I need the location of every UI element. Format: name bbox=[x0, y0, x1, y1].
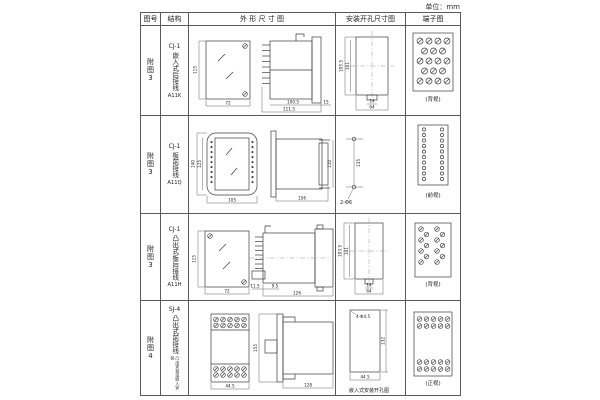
col-header-install: 安装开孔尺寸图 bbox=[336, 13, 406, 26]
dim-front-height: 115 bbox=[192, 65, 197, 73]
dim-side-height: 155 bbox=[253, 343, 258, 351]
terminal-diagram-cell-row2: (前视) bbox=[406, 116, 461, 214]
dim-install-v1: 105.5 bbox=[339, 59, 344, 71]
type-code-row1: A11K bbox=[168, 93, 182, 99]
col-header-fig-no: 图号 bbox=[141, 13, 161, 26]
install-hole-label: 2-Φ6 bbox=[340, 200, 352, 206]
terminal-caption-row4: (正视) bbox=[425, 379, 440, 387]
model-label-row1: CJ-1 bbox=[169, 43, 181, 50]
outline-drawing-row2: 140 125 105 156 bbox=[189, 117, 335, 213]
structure-cell-row3: CJ-1 凸出式板后接线 A11H bbox=[161, 214, 189, 301]
front-view: 115 72 bbox=[192, 41, 250, 106]
outline-drawing-row4: 44.5 155 128 bbox=[189, 302, 335, 395]
dim-flange-width: 15 bbox=[323, 99, 329, 104]
install-drawing-row1: 105.5 101 14 64 bbox=[336, 27, 405, 115]
install-drawing-row4: 4-Φ4.5 132 44.5 嵌入式安装开孔图 bbox=[336, 302, 405, 395]
structure-desc-row1: 嵌入式后接线 bbox=[171, 52, 178, 91]
fig-no-row4: 附图4 bbox=[146, 336, 156, 361]
spec-table: 图号 结构 外 形 尺 寸 图 安装开孔尺寸图 端子图 附图3 CJ-1 嵌入式… bbox=[140, 12, 461, 396]
structure-cell-row2: CJ-1 板前接线 A11Q bbox=[161, 116, 189, 214]
col-header-outline: 外 形 尺 寸 图 bbox=[189, 13, 336, 26]
install-drawing-row3: 103.5 101 14 64 bbox=[336, 215, 405, 300]
fig-no-cell-row1: 附图3 bbox=[141, 26, 161, 116]
dim-install-v1: 135 bbox=[356, 158, 361, 166]
structure-cell-row4: SJ-4 凸出式前接线 凸出安装或嵌入安装 bbox=[161, 301, 189, 396]
fig-no-row3: 附图3 bbox=[146, 245, 156, 270]
model-label-row4: SJ-4 bbox=[169, 306, 180, 313]
outline-drawing-cell-row1: 115 72 100.5 bbox=[189, 26, 336, 116]
install-drawing-cell-row4: 4-Φ4.5 132 44.5 嵌入式安装开孔图 bbox=[336, 301, 406, 396]
fig-no-cell-row4: 附图4 bbox=[141, 301, 161, 396]
outline-drawing-cell-row2: 140 125 105 156 bbox=[189, 116, 336, 214]
fig-no-cell-row3: 附图3 bbox=[141, 214, 161, 301]
mounting-note-row4: 凸出安装或嵌入安装 bbox=[170, 356, 180, 390]
type-code-row2: A11Q bbox=[167, 180, 181, 186]
dim-total-width: 126 bbox=[293, 290, 301, 295]
structure-cell-row1: CJ-1 嵌入式后接线 A11K bbox=[161, 26, 189, 116]
units-label: 单位：mm bbox=[408, 2, 460, 12]
dim-front-height: 115 bbox=[192, 254, 197, 262]
structure-desc-row4: 凸出式前接线 bbox=[171, 315, 178, 354]
dim-install-b2: 64 bbox=[366, 288, 372, 293]
fig-no-row2: 附图3 bbox=[146, 152, 156, 177]
terminal-diagram-cell-row4: (正视) bbox=[406, 301, 461, 396]
dim-install-v1: 132 bbox=[381, 336, 386, 344]
type-code-row3: A11H bbox=[167, 282, 181, 288]
fig-no-row1: 附图3 bbox=[146, 58, 156, 83]
col-header-terminal: 端子图 bbox=[406, 13, 461, 26]
dim-front-width: 44.5 bbox=[225, 383, 235, 388]
terminal-diagram-row4: (正视) bbox=[406, 302, 460, 395]
side-view: 11.5 9.5 126 bbox=[249, 225, 333, 296]
front-view: 115 72 bbox=[192, 231, 250, 294]
dim-side-width: 156 bbox=[298, 195, 306, 200]
install-caption-row4: 嵌入式安装开孔图 bbox=[349, 387, 389, 394]
front-view: 140 125 105 bbox=[191, 133, 258, 203]
dim-body-width: 100.5 bbox=[287, 99, 299, 104]
terminal-caption-row3: (背视) bbox=[425, 280, 440, 288]
dim-pedestal-width: 11.5 bbox=[250, 283, 260, 288]
side-view: 155 128 bbox=[253, 314, 333, 388]
dim-front-width: 72 bbox=[224, 288, 230, 293]
outline-drawing-cell-row4: 44.5 155 128 bbox=[189, 301, 336, 396]
terminal-diagram-row1: (背视) bbox=[406, 27, 460, 115]
terminal-caption-row2: (前视) bbox=[425, 191, 440, 199]
dim-install-v2: 101 bbox=[344, 246, 349, 254]
outline-drawing-row3: 115 72 bbox=[189, 215, 335, 300]
dim-front-h1: 140 bbox=[191, 159, 196, 167]
model-label-row2: CJ-1 bbox=[169, 143, 181, 150]
dim-front-width: 72 bbox=[225, 100, 231, 105]
dim-install-b1: 14 bbox=[366, 282, 372, 287]
dim-install-b1: 14 bbox=[369, 98, 375, 103]
install-drawing-cell-row2: 135 2-Φ6 bbox=[336, 116, 406, 214]
dim-install-b2: 64 bbox=[369, 104, 375, 109]
install-drawing-cell-row3: 103.5 101 14 64 bbox=[336, 214, 406, 301]
terminal-caption-row1: (背视) bbox=[425, 95, 440, 103]
dim-gap-width: 9.5 bbox=[272, 283, 279, 288]
install-hole-label: 4-Φ4.5 bbox=[356, 314, 370, 319]
side-view: 100.5 15 111.5 bbox=[262, 34, 331, 112]
terminal-diagram-row3: (背视) bbox=[406, 215, 460, 300]
dim-front-h2: 125 bbox=[197, 159, 202, 167]
side-view: 156 110 bbox=[271, 131, 333, 201]
dim-front-width: 105 bbox=[228, 197, 236, 202]
structure-desc-row3: 凸出式板后接线 bbox=[171, 235, 178, 281]
outline-drawing-row1: 115 72 100.5 bbox=[190, 27, 335, 115]
terminal-diagram-cell-row3: (背视) bbox=[406, 214, 461, 301]
install-drawing-cell-row1: 105.5 101 14 64 bbox=[336, 26, 406, 116]
front-view: 44.5 bbox=[211, 314, 249, 389]
outline-drawing-cell-row3: 115 72 bbox=[189, 214, 336, 301]
terminal-diagram-cell-row1: (背视) bbox=[406, 26, 461, 116]
col-header-structure: 结构 bbox=[161, 13, 189, 26]
terminal-diagram-row2: (前视) bbox=[406, 117, 460, 213]
install-drawing-row2: 135 2-Φ6 bbox=[336, 117, 405, 213]
dim-side-width: 128 bbox=[304, 382, 312, 387]
dim-install-b1: 44.5 bbox=[360, 374, 370, 379]
document-page: 单位：mm 图号 结构 外 形 尺 寸 图 安装开孔尺寸图 端子图 附图3 CJ… bbox=[0, 0, 600, 400]
dim-side-height: 110 bbox=[327, 159, 332, 167]
dim-install-v1: 103.5 bbox=[338, 244, 343, 256]
model-label-row3: CJ-1 bbox=[169, 226, 181, 233]
dim-total-width: 111.5 bbox=[283, 106, 295, 111]
dim-install-v2: 101 bbox=[345, 61, 350, 69]
fig-no-cell-row2: 附图3 bbox=[141, 116, 161, 214]
structure-desc-row2: 板前接线 bbox=[171, 152, 178, 178]
